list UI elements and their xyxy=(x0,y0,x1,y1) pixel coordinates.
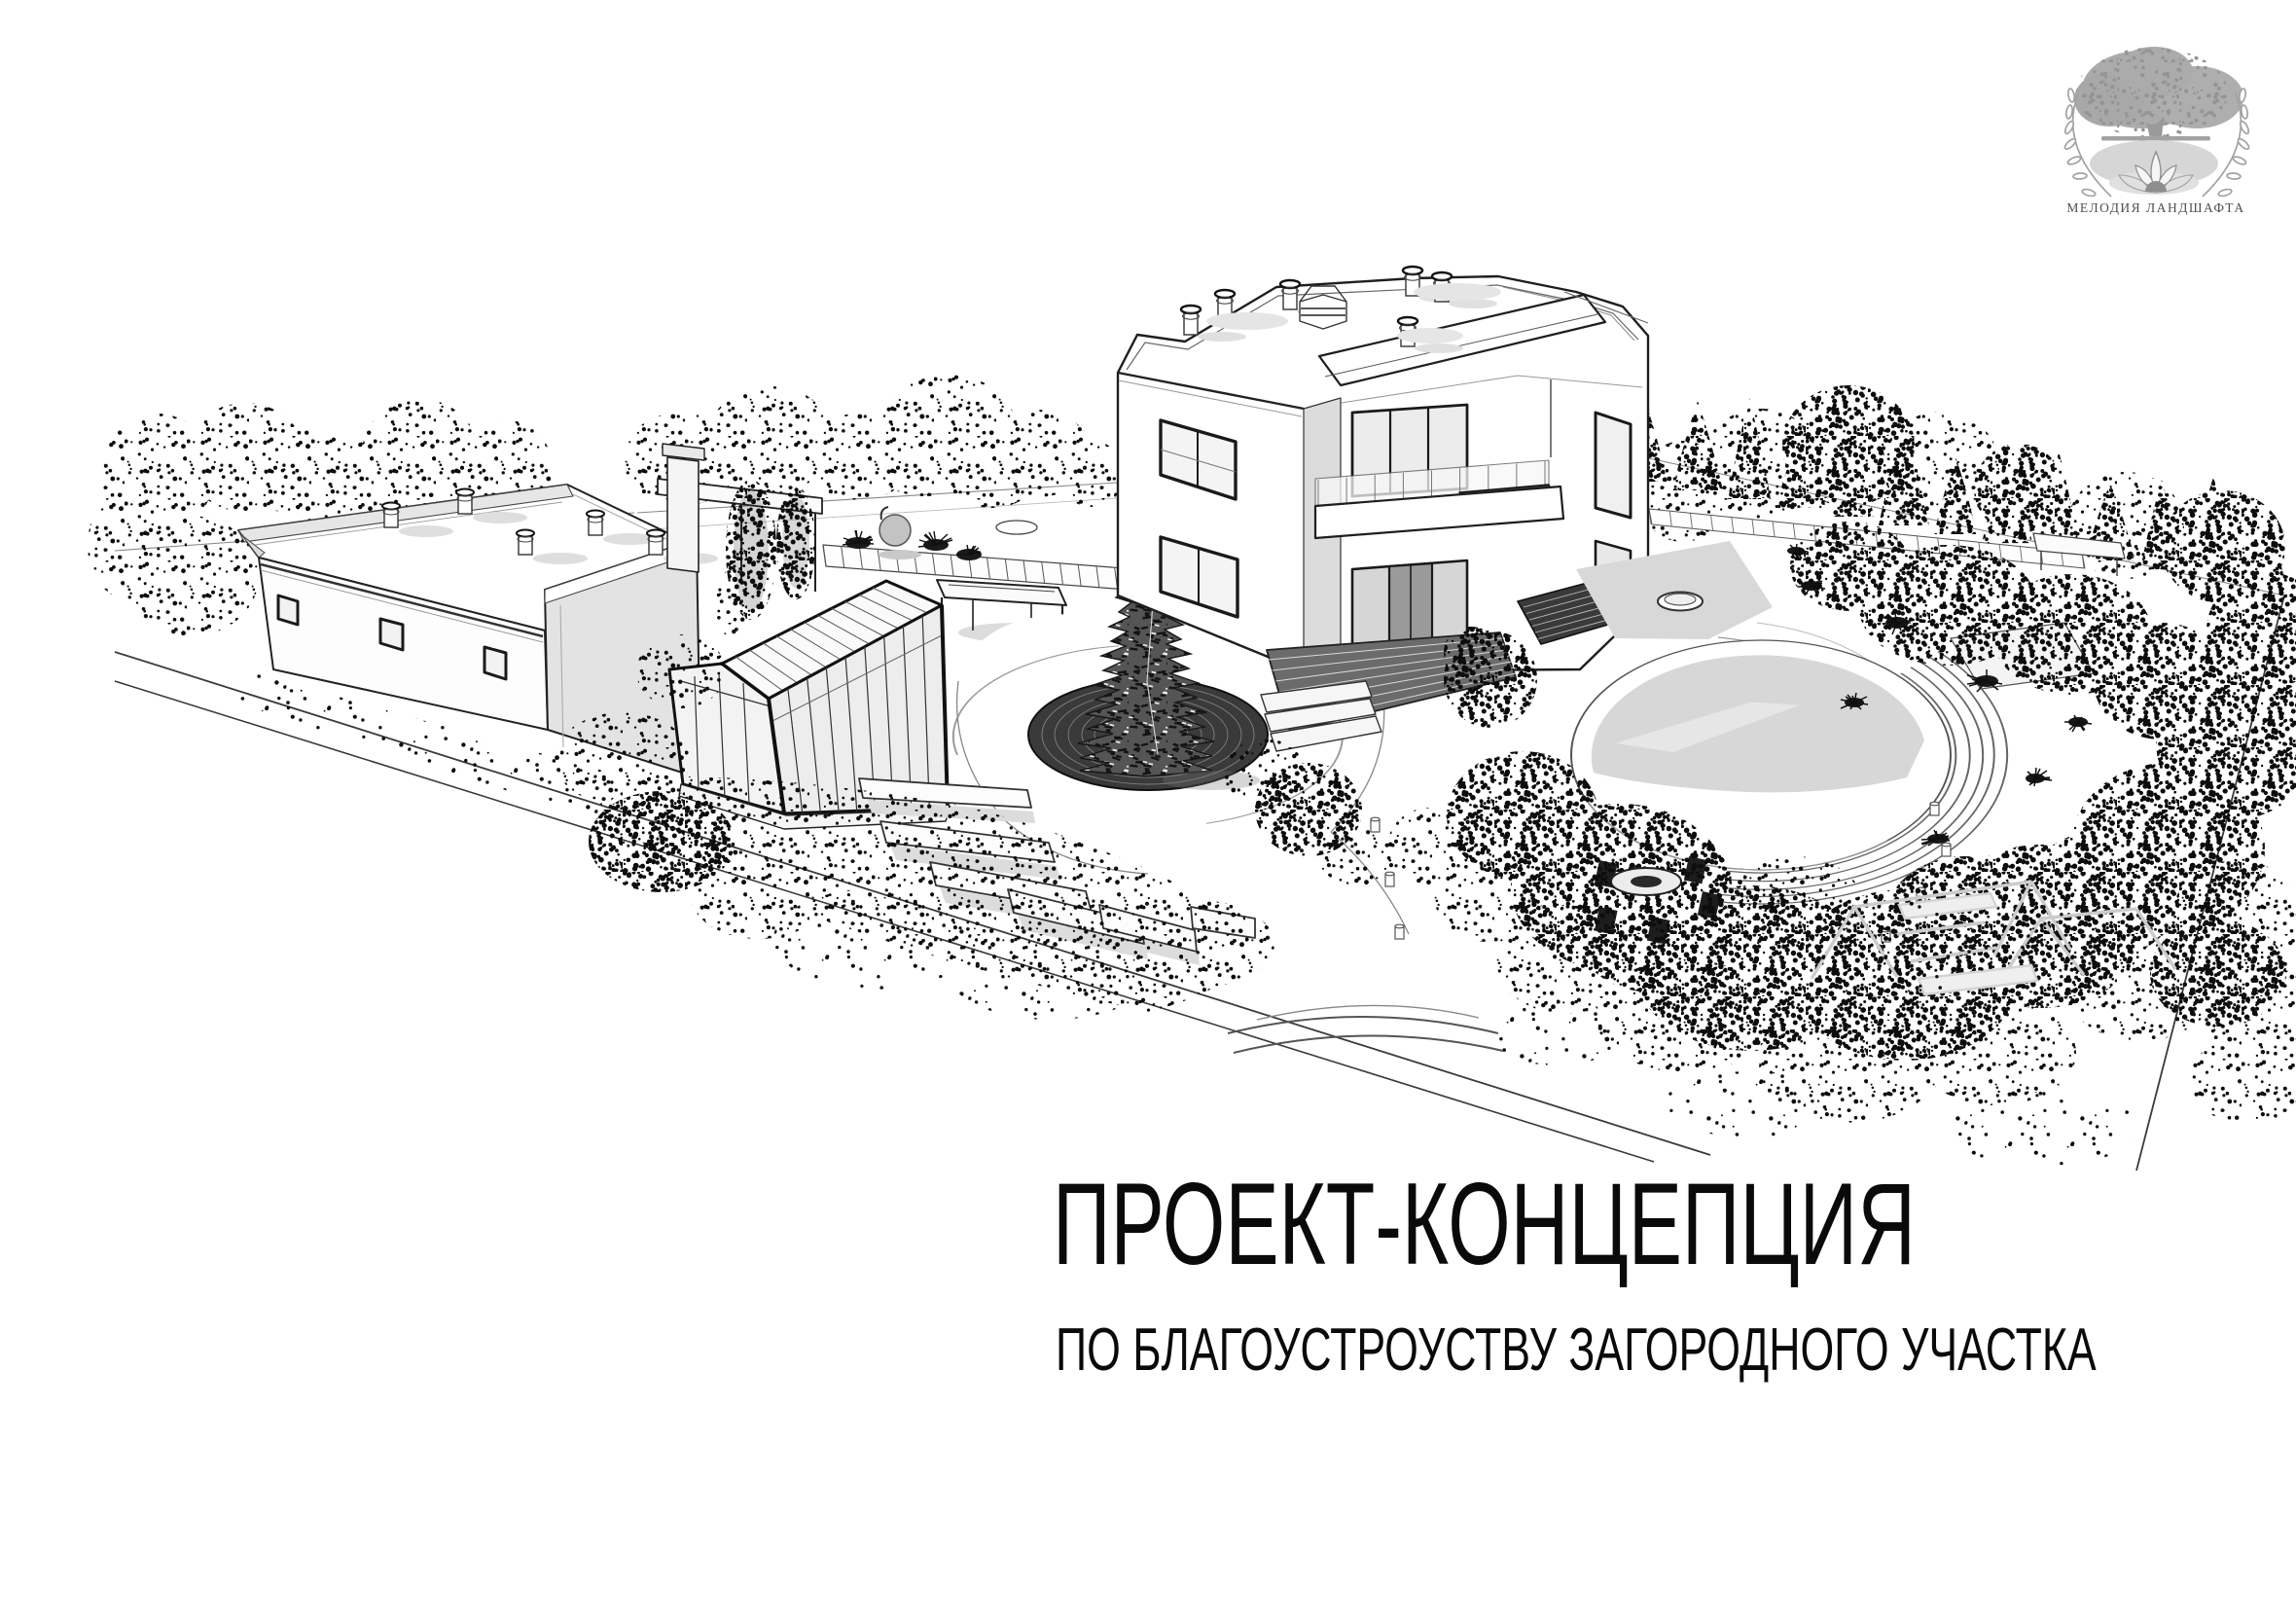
svg-text:МЕЛОДИЯ ЛАНДШАФТА: МЕЛОДИЯ ЛАНДШАФТА xyxy=(2066,200,2244,215)
